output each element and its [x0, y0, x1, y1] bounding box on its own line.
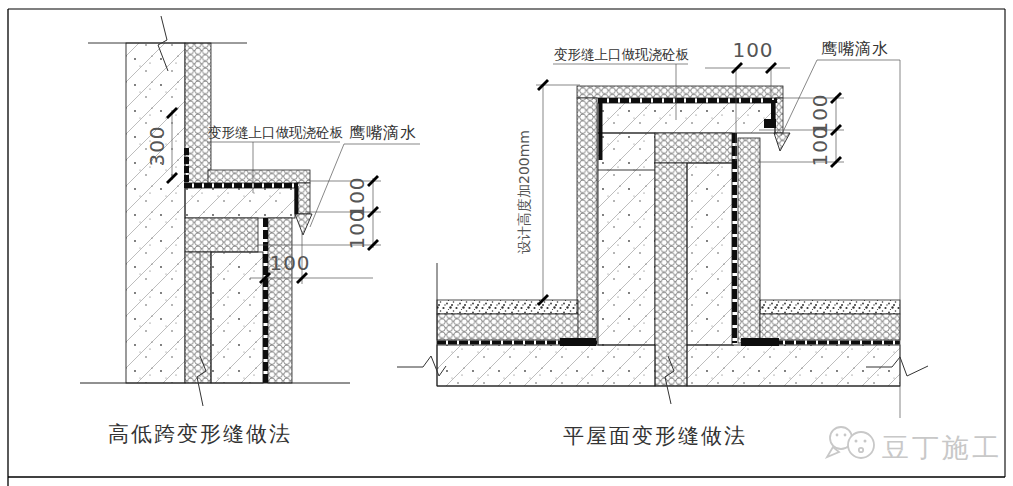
right-slab-label: 变形缝上口做现浇砼板	[554, 46, 690, 62]
right-caption: 平屋面变形缝做法	[563, 424, 747, 448]
roof-slab-left	[437, 345, 655, 386]
joint-filler-block	[655, 133, 732, 163]
design-height-note: 设计高度加200mm	[516, 130, 532, 254]
roof-insulation-left	[437, 314, 578, 340]
left-detail-high-low-span: 300 变形缝上口做现浇砼板 鹰嘴滴水 100 100	[80, 16, 420, 446]
joint-filler-strip	[655, 163, 687, 386]
cap-right-insulation-wrap	[775, 98, 783, 133]
dim-text-300: 300	[145, 125, 169, 166]
dim-text-joint-100: 100	[269, 251, 310, 275]
drip-label-group: 鹰嘴滴水	[781, 39, 900, 136]
roof-gravel-left	[437, 300, 578, 314]
dim-text-top-100: 100	[732, 38, 773, 62]
roof-insulation-right	[760, 314, 900, 340]
dim-text-100-lower: 100	[345, 208, 369, 249]
membrane-upturn-left	[560, 338, 596, 346]
left-caption: 高低跨变形缝做法	[108, 422, 292, 446]
right-parapet-concrete	[687, 163, 732, 345]
left-outer-insulation	[577, 98, 597, 343]
roof-slab-right	[687, 345, 900, 386]
left-parapet-concrete	[598, 133, 655, 345]
dim-design-height: 设计高度加200mm	[516, 80, 580, 305]
roof-gravel-right	[760, 300, 900, 314]
cap-top-insulation	[208, 170, 310, 183]
joint-filler-strip	[185, 252, 211, 383]
watermark: 豆丁施工	[827, 427, 1002, 463]
cap-slab-concrete	[185, 188, 295, 218]
watermark-text: 豆丁施工	[882, 432, 1002, 463]
membrane-upturn-right	[741, 338, 779, 346]
cad-drawing-canvas: 300 变形缝上口做现浇砼板 鹰嘴滴水 100 100	[0, 0, 1013, 486]
joint-filler-block	[185, 218, 258, 252]
drip-beak	[774, 133, 790, 151]
lower-wall-concrete	[211, 252, 263, 383]
outer-insulation-strip	[268, 218, 292, 383]
watermark-logo-icon	[827, 427, 874, 458]
right-outer-insulation	[738, 138, 760, 343]
left-drip-label: 鹰嘴滴水	[349, 123, 417, 142]
dim-text-100-lower: 100	[808, 125, 832, 166]
right-drip-label: 鹰嘴滴水	[821, 39, 889, 58]
cap-top-insulation	[577, 86, 783, 98]
high-wall-concrete	[126, 43, 185, 383]
membrane-drip-groove	[764, 119, 776, 128]
left-slab-label: 变形缝上口做现浇砼板	[208, 124, 344, 140]
right-detail-flat-roof: 100 设计高度加200mm 100 100 变形缝上口做现浇砼板	[397, 38, 928, 448]
drip-beak	[295, 214, 312, 235]
cap-slab-concrete	[598, 103, 775, 133]
